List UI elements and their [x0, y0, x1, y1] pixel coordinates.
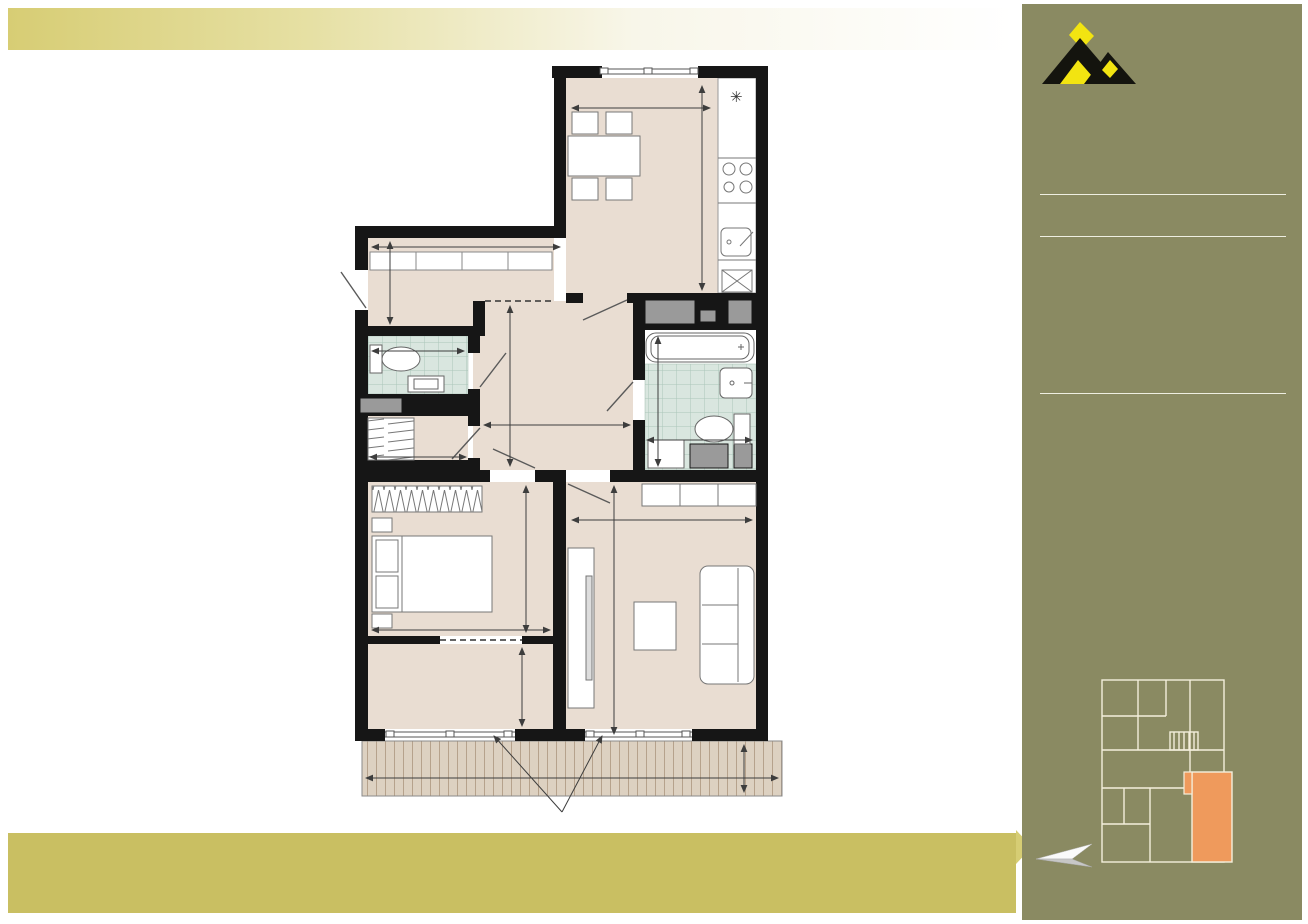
terrace-deck	[362, 741, 782, 796]
direction-arrow-icon	[1034, 842, 1096, 872]
vent-star-icon: ✳	[730, 89, 743, 106]
divider	[1040, 194, 1286, 195]
sidebar	[1022, 4, 1302, 920]
bedroom-furniture	[372, 486, 492, 628]
floor-plan: ✳	[340, 48, 790, 823]
building-schema	[1094, 676, 1239, 866]
header-strip	[8, 8, 1016, 50]
divider	[1040, 393, 1286, 394]
logo	[1040, 18, 1140, 90]
page: ✳	[0, 0, 1308, 924]
highlighted-apartment	[1192, 772, 1232, 862]
hallway-wardrobe	[370, 252, 552, 270]
footer-disclaimer	[8, 833, 1016, 913]
divider	[1040, 236, 1286, 237]
closet-shelves	[368, 418, 414, 460]
